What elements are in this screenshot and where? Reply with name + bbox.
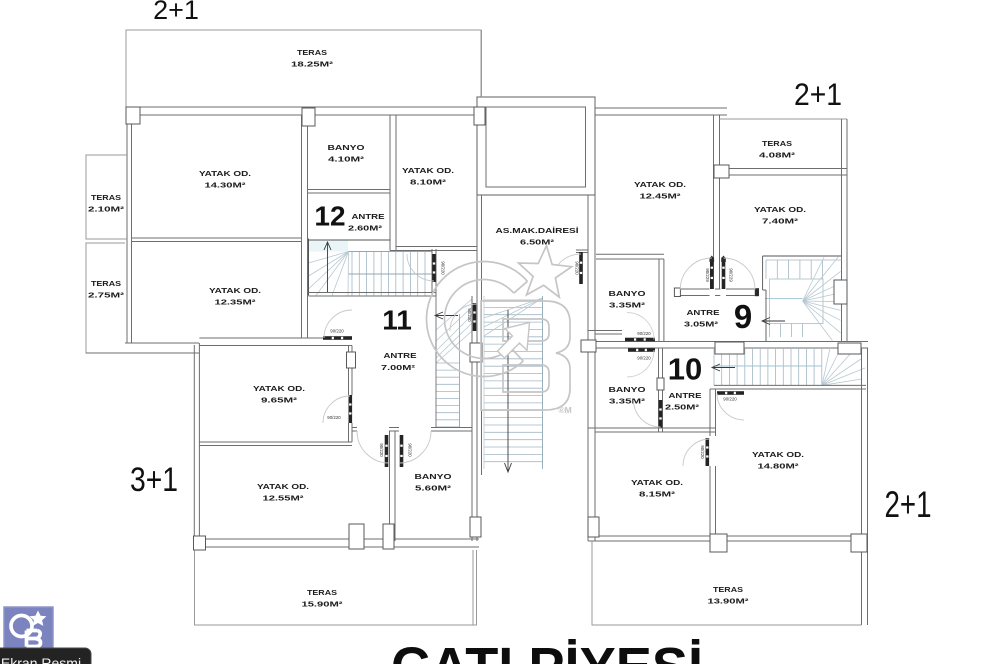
svg-text:YATAK OD.: YATAK OD.	[199, 169, 251, 178]
svg-text:12.55M²: 12.55M²	[263, 494, 305, 503]
svg-text:8.10M²: 8.10M²	[410, 178, 447, 187]
svg-text:2.60M²: 2.60M²	[348, 224, 383, 233]
svg-text:90/220: 90/220	[327, 415, 341, 420]
svg-text:2+1: 2+1	[794, 76, 842, 112]
svg-text:3.35M²: 3.35M²	[609, 397, 646, 406]
svg-text:BANYO: BANYO	[415, 472, 452, 481]
svg-text:5.60M²: 5.60M²	[415, 484, 452, 493]
svg-text:TERAS: TERAS	[713, 585, 743, 594]
svg-text:90/220: 90/220	[379, 443, 384, 457]
svg-text:15.90M²: 15.90M²	[302, 600, 344, 609]
svg-text:BANYO: BANYO	[328, 143, 365, 152]
svg-text:YATAK OD.: YATAK OD.	[754, 205, 806, 214]
svg-text:YATAK OD.: YATAK OD.	[253, 384, 305, 393]
svg-text:ANTRE: ANTRE	[687, 308, 720, 317]
svg-text:2.10M²: 2.10M²	[88, 205, 125, 214]
svg-text:9: 9	[734, 298, 752, 335]
svg-text:14.80M²: 14.80M²	[758, 462, 800, 471]
svg-text:ANTRE: ANTRE	[669, 391, 702, 400]
svg-text:14.30M²: 14.30M²	[205, 181, 247, 190]
svg-text:YATAK OD.: YATAK OD.	[634, 180, 686, 189]
svg-text:90/220: 90/220	[637, 356, 651, 361]
svg-text:TERAS: TERAS	[297, 48, 327, 57]
svg-text:90/220: 90/220	[467, 308, 472, 322]
svg-text:TERAS: TERAS	[91, 193, 121, 202]
svg-text:7.40M²: 7.40M²	[762, 217, 799, 226]
svg-text:2.50M²: 2.50M²	[665, 403, 700, 412]
svg-text:18.25M²: 18.25M²	[291, 60, 334, 69]
svg-text:4.08M²: 4.08M²	[759, 151, 796, 160]
svg-text:12.45M²: 12.45M²	[640, 192, 682, 201]
svg-text:90/220: 90/220	[575, 261, 580, 275]
svg-text:AS.MAK.DAİRESİ: AS.MAK.DAİRESİ	[496, 226, 579, 235]
svg-text:YATAK OD.: YATAK OD.	[631, 478, 683, 487]
svg-text:4.10M²: 4.10M²	[328, 155, 365, 164]
svg-text:3.35M²: 3.35M²	[609, 301, 646, 310]
svg-text:ANTRE: ANTRE	[352, 212, 385, 221]
svg-text:ÇATI PİYESİ: ÇATI PİYESİ	[391, 637, 703, 664]
svg-text:TERAS: TERAS	[91, 279, 121, 288]
svg-text:90/220: 90/220	[723, 397, 737, 402]
svg-text:3.05M²: 3.05M²	[684, 320, 719, 329]
svg-text:6.50M²: 6.50M²	[520, 238, 555, 247]
svg-text:YATAK OD.: YATAK OD.	[402, 166, 454, 175]
svg-text:TERAS: TERAS	[307, 588, 337, 597]
svg-text:12: 12	[314, 201, 345, 232]
svg-text:7.00M²: 7.00M²	[381, 363, 416, 372]
svg-text:90/220: 90/220	[330, 329, 344, 334]
svg-text:11: 11	[382, 305, 412, 336]
svg-text:90/220: 90/220	[408, 443, 413, 457]
svg-text:YATAK OD.: YATAK OD.	[752, 450, 804, 459]
svg-text:90/220: 90/220	[700, 445, 705, 459]
svg-text:2+1: 2+1	[885, 483, 932, 525]
svg-text:TERAS: TERAS	[762, 139, 792, 148]
svg-text:12.35M²: 12.35M²	[215, 298, 257, 307]
svg-text:YATAK OD.: YATAK OD.	[209, 286, 261, 295]
svg-text:®M: ®M	[558, 405, 571, 415]
svg-text:90/229: 90/229	[705, 268, 710, 282]
svg-text:90/220: 90/220	[637, 331, 651, 336]
svg-text:13.90M²: 13.90M²	[708, 597, 750, 606]
svg-text:YATAK OD.: YATAK OD.	[257, 482, 309, 491]
svg-text:ANTRE: ANTRE	[384, 351, 417, 360]
svg-text:8.15M²: 8.15M²	[639, 490, 676, 499]
svg-text:2+1: 2+1	[153, 0, 199, 25]
svg-text:BANYO: BANYO	[609, 385, 646, 394]
svg-text:2.75M²: 2.75M²	[88, 291, 125, 300]
svg-text:9.65M²: 9.65M²	[261, 396, 298, 405]
svg-text:Ekran Resmi: Ekran Resmi	[1, 655, 81, 664]
svg-text:90/220: 90/220	[441, 261, 446, 275]
svg-text:10: 10	[668, 352, 702, 387]
svg-text:BANYO: BANYO	[609, 289, 646, 298]
svg-text:90/229: 90/229	[728, 268, 733, 282]
svg-text:3+1: 3+1	[130, 461, 178, 499]
